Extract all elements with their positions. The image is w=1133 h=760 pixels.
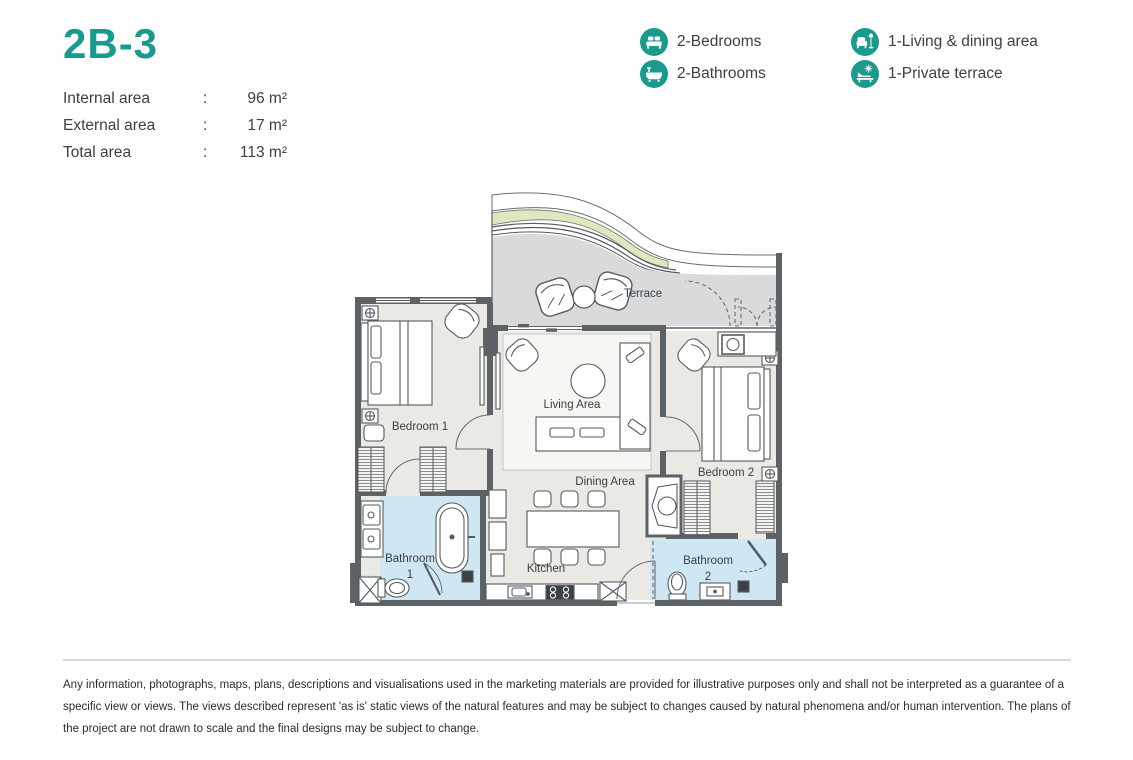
area-row-internal: Internal area : 96 m² [63, 90, 287, 117]
bathroom2-number: 2 [705, 571, 711, 583]
area-label: External area [63, 117, 203, 135]
bedroom1-label: Bedroom 1 [392, 421, 448, 433]
living-area-label: Living Area [544, 399, 602, 411]
area-separator: : [203, 117, 225, 135]
utility-basin [647, 476, 681, 536]
bathroom1-label: Bathroom [385, 553, 435, 565]
area-value: 17 m² [225, 117, 287, 135]
bed-icon [640, 28, 668, 56]
area-value: 96 m² [225, 90, 287, 108]
area-row-total: Total area : 113 m² [63, 144, 287, 171]
disclaimer-text: Any information, photographs, maps, plan… [63, 674, 1078, 740]
area-separator: : [203, 90, 225, 108]
bathroom2-label: Bathroom [683, 555, 733, 567]
kitchen-label: Kitchen [527, 563, 565, 575]
divider-rule [63, 659, 1071, 661]
unit-title: 2B-3 [63, 20, 158, 68]
terrace-label: Terrace [624, 288, 662, 300]
area-row-external: External area : 17 m² [63, 117, 287, 144]
legend-label: 1-Private terrace [888, 65, 1003, 83]
legend-item-living-dining: 1-Living & dining area [851, 28, 1038, 56]
area-label: Internal area [63, 90, 203, 108]
legend-label: 2-Bathrooms [677, 65, 766, 83]
legend-item-bathrooms: 2-Bathrooms [640, 60, 766, 88]
legend-label: 1-Living & dining area [888, 33, 1038, 51]
floor-plan: Terrace Living Area Dining Area Kitchen … [350, 185, 792, 621]
bathroom1-number: 1 [407, 569, 413, 581]
legend-item-private-terrace: 1-Private terrace [851, 60, 1038, 88]
area-separator: : [203, 144, 225, 162]
terrace-icon [851, 60, 879, 88]
terrace-table [573, 286, 595, 308]
dining-furniture [527, 491, 619, 565]
window-slots [376, 299, 476, 303]
area-value: 113 m² [225, 144, 287, 162]
legend-column-2: 1-Living & dining area 1-Private terrace [851, 28, 1038, 88]
area-label: Total area [63, 144, 203, 162]
sofa-lamp-icon [851, 28, 879, 56]
legend-column-1: 2-Bedrooms 2-Bathrooms [640, 28, 766, 88]
bathtub-icon [640, 60, 668, 88]
legend-item-bedrooms: 2-Bedrooms [640, 28, 766, 56]
area-summary: Internal area : 96 m² External area : 17… [63, 90, 287, 171]
legend-label: 2-Bedrooms [677, 33, 761, 51]
bedroom2-label: Bedroom 2 [698, 467, 754, 479]
dining-area-label: Dining Area [575, 476, 635, 488]
disclaimer-line: the project are not drawn to scale and t… [63, 718, 1078, 740]
disclaimer-line: Any information, photographs, maps, plan… [63, 674, 1078, 696]
disclaimer-line: specific view or views. The views descri… [63, 696, 1078, 718]
